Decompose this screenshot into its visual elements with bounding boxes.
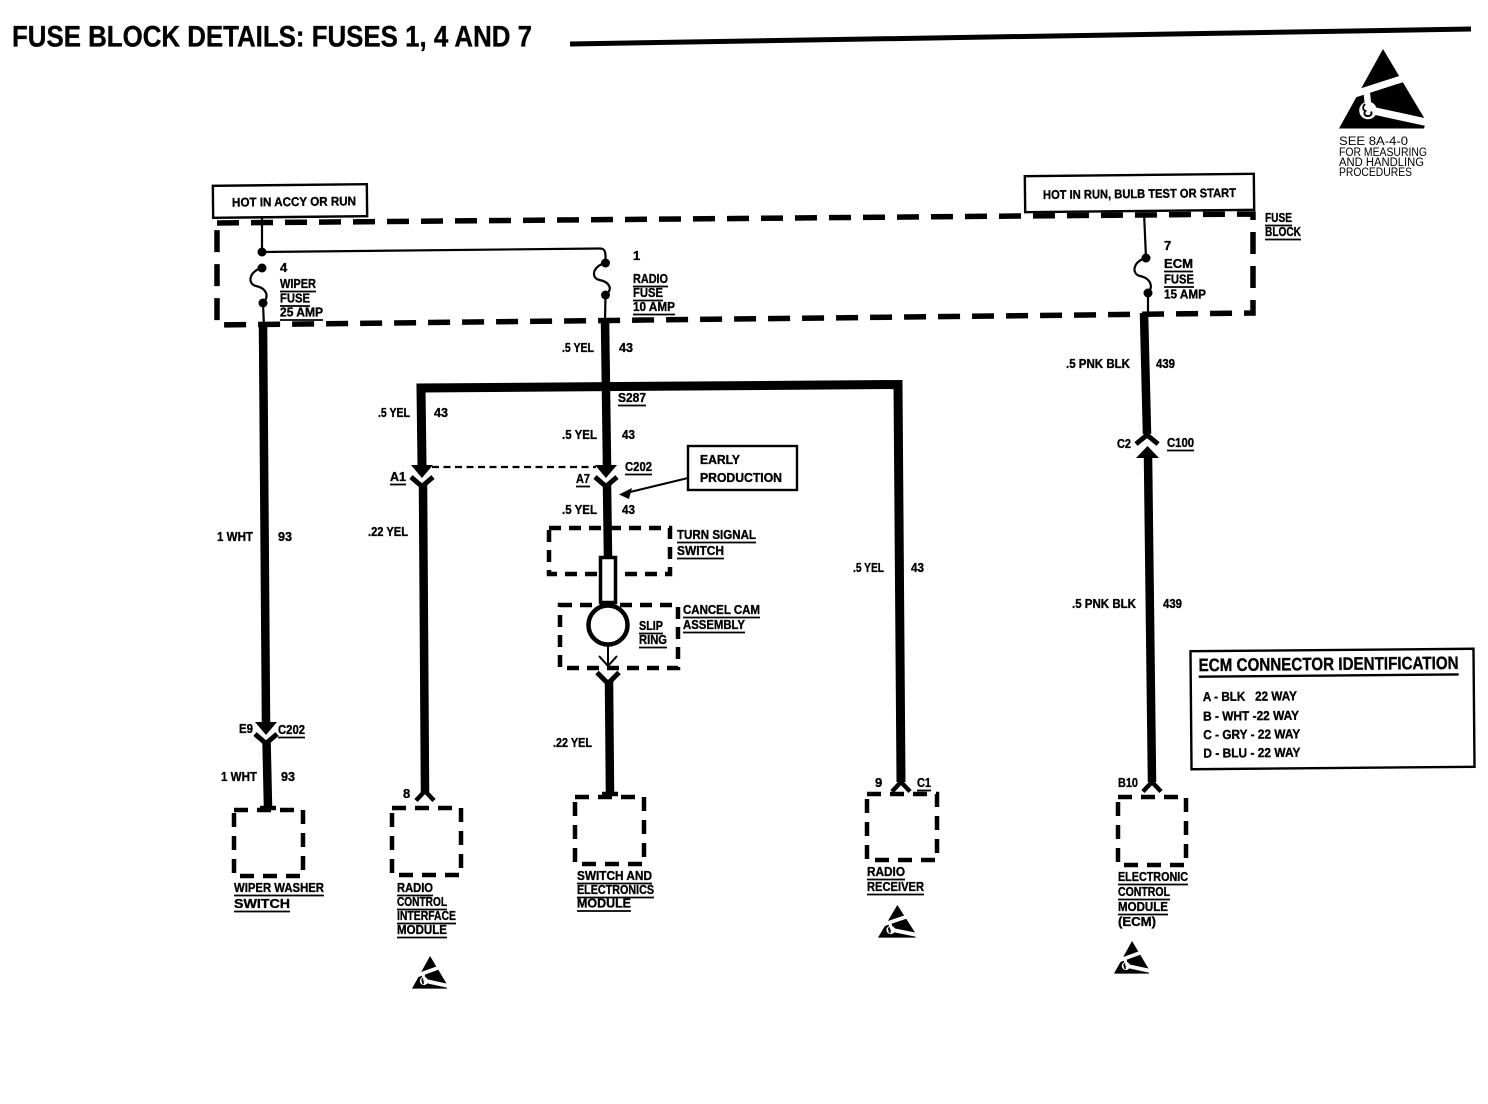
svg-text:SLIP: SLIP (639, 618, 663, 633)
svg-text:439: 439 (1156, 356, 1175, 371)
svg-text:WIPER: WIPER (280, 276, 317, 291)
svg-text:PRODUCTION: PRODUCTION (700, 471, 782, 485)
svg-text:4: 4 (280, 260, 288, 275)
svg-text:WIPER WASHER: WIPER WASHER (234, 880, 325, 895)
svg-text:S287: S287 (618, 390, 646, 405)
svg-text:ECM CONNECTOR IDENTIFICATION: ECM CONNECTOR IDENTIFICATION (1199, 653, 1459, 675)
svg-text:TURN SIGNAL: TURN SIGNAL (677, 527, 756, 542)
svg-text:.5 YEL: .5 YEL (378, 405, 410, 420)
svg-text:1: 1 (633, 248, 640, 263)
svg-text:93: 93 (278, 529, 292, 544)
svg-text:.5 PNK BLK: .5 PNK BLK (1072, 596, 1137, 611)
svg-text:SWITCH: SWITCH (234, 896, 290, 911)
svg-text:SWITCH: SWITCH (677, 543, 724, 558)
svg-text:7: 7 (1164, 238, 1171, 253)
svg-text:.5 YEL: .5 YEL (562, 427, 597, 442)
svg-text:HOT IN ACCY OR RUN: HOT IN ACCY OR RUN (232, 194, 356, 209)
svg-text:.5 PNK BLK: .5 PNK BLK (1066, 356, 1131, 371)
svg-text:15 AMP: 15 AMP (1164, 287, 1206, 302)
svg-text:HOT IN RUN, BULB TEST OR START: HOT IN RUN, BULB TEST OR START (1043, 186, 1236, 202)
svg-text:RADIO: RADIO (867, 864, 905, 879)
svg-text:43: 43 (911, 560, 924, 575)
svg-text:C - GRY - 22 WAY: C - GRY - 22 WAY (1203, 726, 1300, 742)
svg-text:1 WHT: 1 WHT (217, 529, 253, 544)
svg-text:.5 YEL: .5 YEL (562, 502, 597, 517)
svg-text:43: 43 (619, 340, 633, 355)
svg-text:.5 YEL: .5 YEL (853, 560, 884, 575)
svg-text:A1: A1 (390, 469, 406, 484)
svg-text:B10: B10 (1118, 775, 1138, 790)
svg-text:FUSE: FUSE (1164, 272, 1194, 287)
svg-text:RADIO: RADIO (397, 880, 433, 895)
svg-text:RADIO: RADIO (633, 271, 668, 286)
svg-text:PROCEDURES: PROCEDURES (1339, 167, 1412, 179)
svg-text:EARLY: EARLY (700, 453, 741, 467)
svg-text:FUSE: FUSE (1265, 210, 1292, 225)
svg-text:FUSE: FUSE (280, 291, 310, 306)
svg-text:1 WHT: 1 WHT (221, 769, 257, 784)
svg-text:FUSE BLOCK DETAILS: FUSES 1, 4: FUSE BLOCK DETAILS: FUSES 1, 4 AND 7 (12, 21, 532, 54)
svg-text:.5 YEL: .5 YEL (562, 340, 594, 355)
svg-text:ELECTRONIC: ELECTRONIC (1118, 869, 1189, 884)
svg-text:D - BLU - 22 WAY: D - BLU - 22 WAY (1203, 745, 1300, 761)
svg-text:E9: E9 (239, 721, 253, 736)
svg-text:C2: C2 (1117, 436, 1131, 451)
svg-text:RECEIVER: RECEIVER (867, 879, 925, 894)
svg-text:ASSEMBLY: ASSEMBLY (683, 617, 745, 632)
svg-text:A - BLK 22 WAY: A - BLK 22 WAY (1203, 688, 1297, 704)
svg-text:439: 439 (1163, 596, 1182, 611)
svg-text:43: 43 (622, 427, 635, 442)
svg-text:B - WHT -22 WAY: B - WHT -22 WAY (1203, 708, 1299, 724)
svg-text:MODULE: MODULE (1118, 899, 1168, 914)
svg-text:C100: C100 (1167, 435, 1194, 450)
svg-text:A7: A7 (576, 471, 590, 486)
svg-text:(ECM): (ECM) (1118, 914, 1156, 929)
svg-text:9: 9 (875, 775, 882, 790)
svg-text:43: 43 (622, 502, 635, 517)
svg-text:8: 8 (403, 786, 410, 801)
svg-text:ECM: ECM (1164, 256, 1193, 271)
svg-text:C1: C1 (917, 775, 931, 790)
svg-text:.22 YEL: .22 YEL (553, 735, 592, 750)
svg-text:CANCEL CAM: CANCEL CAM (683, 602, 760, 617)
svg-text:43: 43 (434, 405, 448, 420)
svg-text:93: 93 (281, 769, 295, 784)
svg-text:CONTROL: CONTROL (1118, 884, 1170, 899)
svg-text:C202: C202 (278, 722, 305, 737)
svg-text:SWITCH AND: SWITCH AND (577, 868, 652, 883)
svg-text:C202: C202 (625, 459, 652, 474)
svg-text:.22 YEL: .22 YEL (368, 524, 408, 539)
